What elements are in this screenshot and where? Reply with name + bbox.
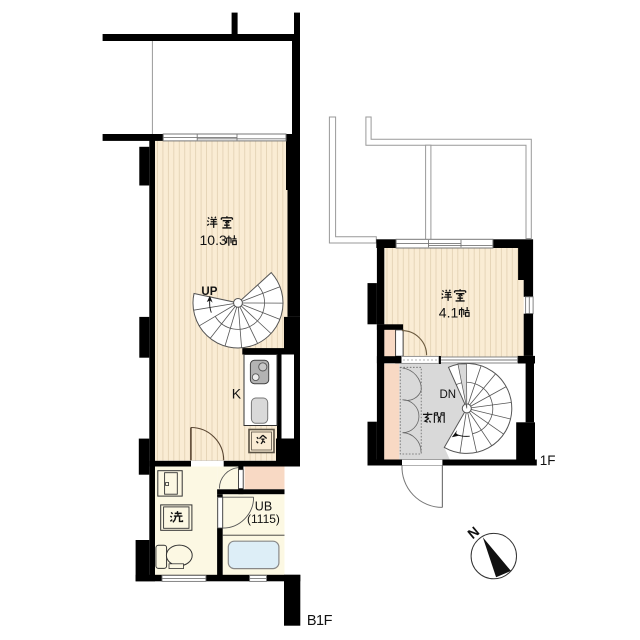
svg-text:UP: UP bbox=[201, 286, 217, 298]
svg-text:DN: DN bbox=[440, 389, 457, 401]
svg-text:10.3: 10.3 bbox=[200, 232, 227, 248]
svg-text:(1115): (1115) bbox=[247, 512, 280, 526]
svg-text:4.1: 4.1 bbox=[439, 304, 459, 320]
svg-text:1F: 1F bbox=[540, 453, 556, 468]
svg-text:B1F: B1F bbox=[307, 613, 333, 629]
svg-text:K: K bbox=[232, 386, 242, 402]
